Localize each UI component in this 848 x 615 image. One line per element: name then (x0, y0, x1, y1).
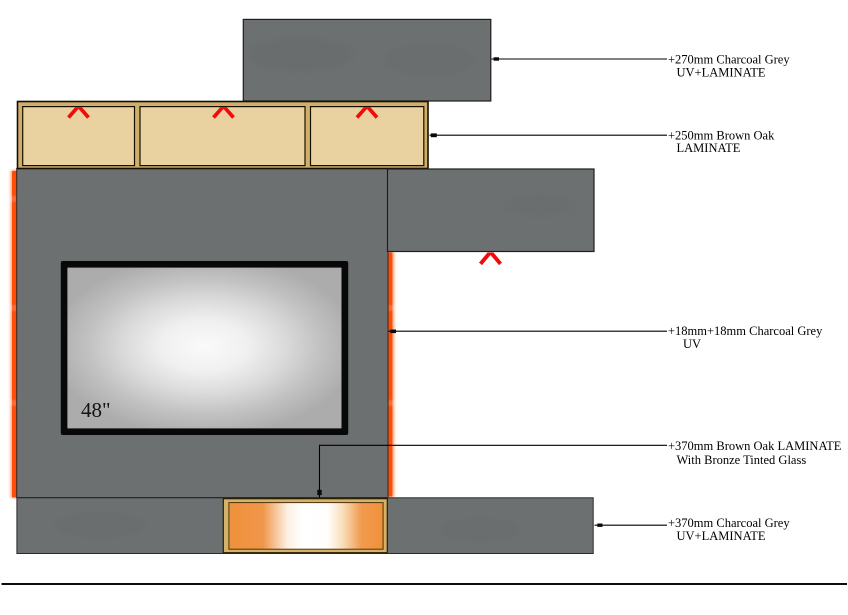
svg-text:+18mm+18mm Charcoal Grey: +18mm+18mm Charcoal Grey (668, 324, 823, 338)
svg-text:LAMINATE: LAMINATE (677, 141, 741, 155)
svg-text:48": 48" (81, 398, 111, 422)
svg-text:+370mm Charcoal Grey: +370mm Charcoal Grey (668, 516, 790, 530)
svg-text:UV: UV (683, 337, 701, 351)
svg-text:+370mm Brown Oak LAMINATE: +370mm Brown Oak LAMINATE (668, 439, 842, 453)
svg-text:UV+LAMINATE: UV+LAMINATE (677, 66, 766, 80)
svg-text:+250mm Brown Oak: +250mm Brown Oak (668, 128, 775, 142)
svg-text:UV+LAMINATE: UV+LAMINATE (677, 529, 766, 543)
svg-text:+270mm Charcoal Grey: +270mm Charcoal Grey (668, 53, 790, 67)
svg-text:With Bronze Tinted Glass: With Bronze Tinted Glass (677, 453, 807, 467)
